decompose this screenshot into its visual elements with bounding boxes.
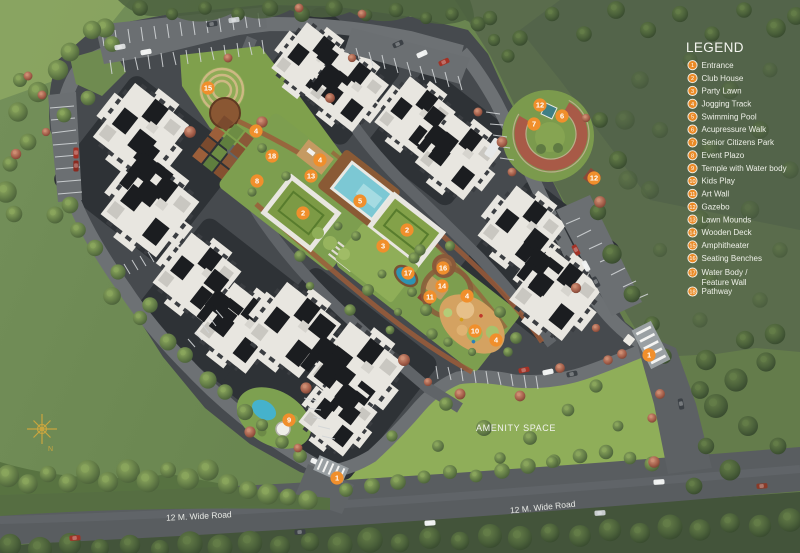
- svg-text:14: 14: [438, 282, 447, 291]
- svg-text:8: 8: [691, 153, 694, 159]
- svg-text:5: 5: [358, 197, 362, 206]
- svg-text:12: 12: [590, 174, 598, 183]
- svg-text:12: 12: [536, 101, 544, 110]
- svg-text:LEGEND: LEGEND: [686, 40, 744, 55]
- svg-text:Pathway: Pathway: [702, 287, 733, 296]
- svg-text:Jogging Track: Jogging Track: [702, 100, 753, 109]
- svg-text:6: 6: [560, 112, 564, 121]
- svg-text:Amphitheater: Amphitheater: [702, 241, 750, 250]
- svg-text:14: 14: [689, 231, 695, 237]
- svg-text:2: 2: [691, 76, 694, 82]
- svg-text:Event Plazo: Event Plazo: [702, 151, 745, 160]
- svg-text:13: 13: [307, 172, 315, 181]
- svg-text:10: 10: [689, 179, 695, 185]
- svg-text:N: N: [48, 446, 53, 453]
- svg-text:2: 2: [301, 209, 305, 218]
- svg-text:3: 3: [381, 242, 385, 251]
- svg-text:3: 3: [691, 89, 694, 95]
- svg-text:16: 16: [689, 256, 695, 262]
- svg-text:11: 11: [426, 293, 434, 302]
- svg-text:Club House: Club House: [702, 74, 744, 83]
- svg-text:Party Lawn: Party Lawn: [702, 87, 742, 96]
- svg-text:Seating Benches: Seating Benches: [702, 254, 763, 263]
- svg-text:Entrance: Entrance: [702, 61, 735, 70]
- svg-text:Gazebo: Gazebo: [702, 203, 731, 212]
- svg-text:2: 2: [405, 226, 409, 235]
- svg-text:7: 7: [691, 140, 694, 146]
- svg-text:13: 13: [689, 218, 695, 224]
- svg-text:Lawn Mounds: Lawn Mounds: [702, 215, 752, 224]
- svg-text:15: 15: [689, 243, 695, 249]
- svg-text:18: 18: [268, 152, 276, 161]
- svg-text:AMENITY SPACE: AMENITY SPACE: [476, 423, 556, 433]
- svg-text:Acupressure Walk: Acupressure Walk: [702, 125, 768, 134]
- svg-text:9: 9: [287, 416, 291, 425]
- svg-text:17: 17: [689, 271, 695, 277]
- svg-text:Wooden Deck: Wooden Deck: [702, 228, 753, 237]
- svg-text:16: 16: [439, 264, 447, 273]
- svg-text:Kids Play: Kids Play: [702, 177, 735, 186]
- svg-text:15: 15: [204, 84, 212, 93]
- svg-text:5: 5: [691, 115, 694, 121]
- svg-text:9: 9: [691, 166, 694, 172]
- svg-text:Senior Citizens Park: Senior Citizens Park: [702, 138, 775, 147]
- svg-text:10: 10: [471, 327, 479, 336]
- svg-text:Swimming Pool: Swimming Pool: [702, 112, 757, 121]
- svg-text:Feature Wall: Feature Wall: [702, 278, 747, 287]
- svg-text:Temple with Water body: Temple with Water body: [702, 164, 787, 173]
- svg-text:6: 6: [691, 128, 694, 134]
- svg-text:7: 7: [532, 120, 536, 129]
- svg-text:4: 4: [691, 102, 694, 108]
- svg-text:Art Wall: Art Wall: [702, 190, 730, 199]
- svg-text:12: 12: [689, 205, 695, 211]
- svg-text:1: 1: [647, 351, 651, 360]
- svg-text:Water Body /: Water Body /: [702, 268, 749, 277]
- svg-text:11: 11: [690, 192, 696, 198]
- svg-text:18: 18: [689, 290, 695, 296]
- svg-text:1: 1: [335, 474, 339, 483]
- svg-text:1: 1: [691, 63, 694, 69]
- svg-text:8: 8: [255, 177, 259, 186]
- svg-text:17: 17: [404, 269, 412, 278]
